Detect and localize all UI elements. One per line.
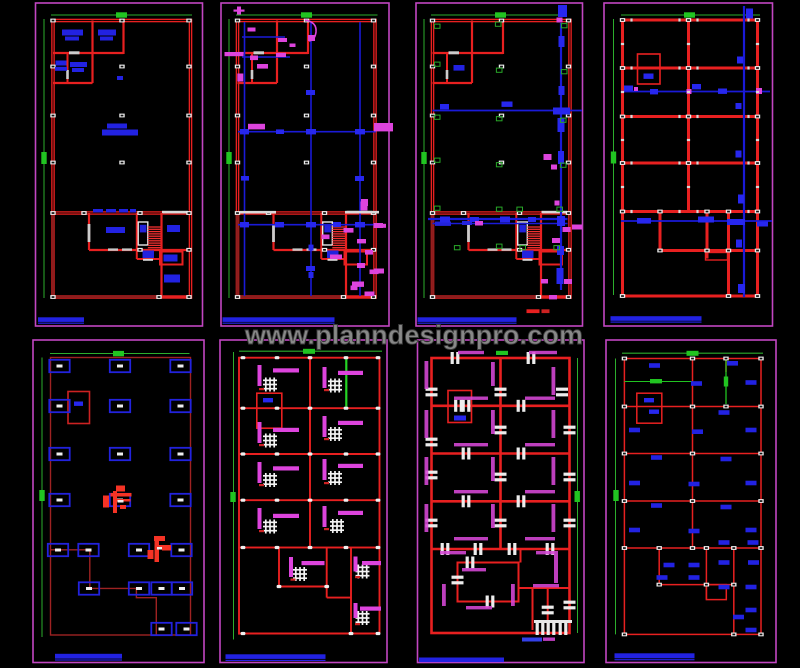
- svg-text:www.planndesignpro.com: www.planndesignpro.com: [244, 320, 583, 350]
